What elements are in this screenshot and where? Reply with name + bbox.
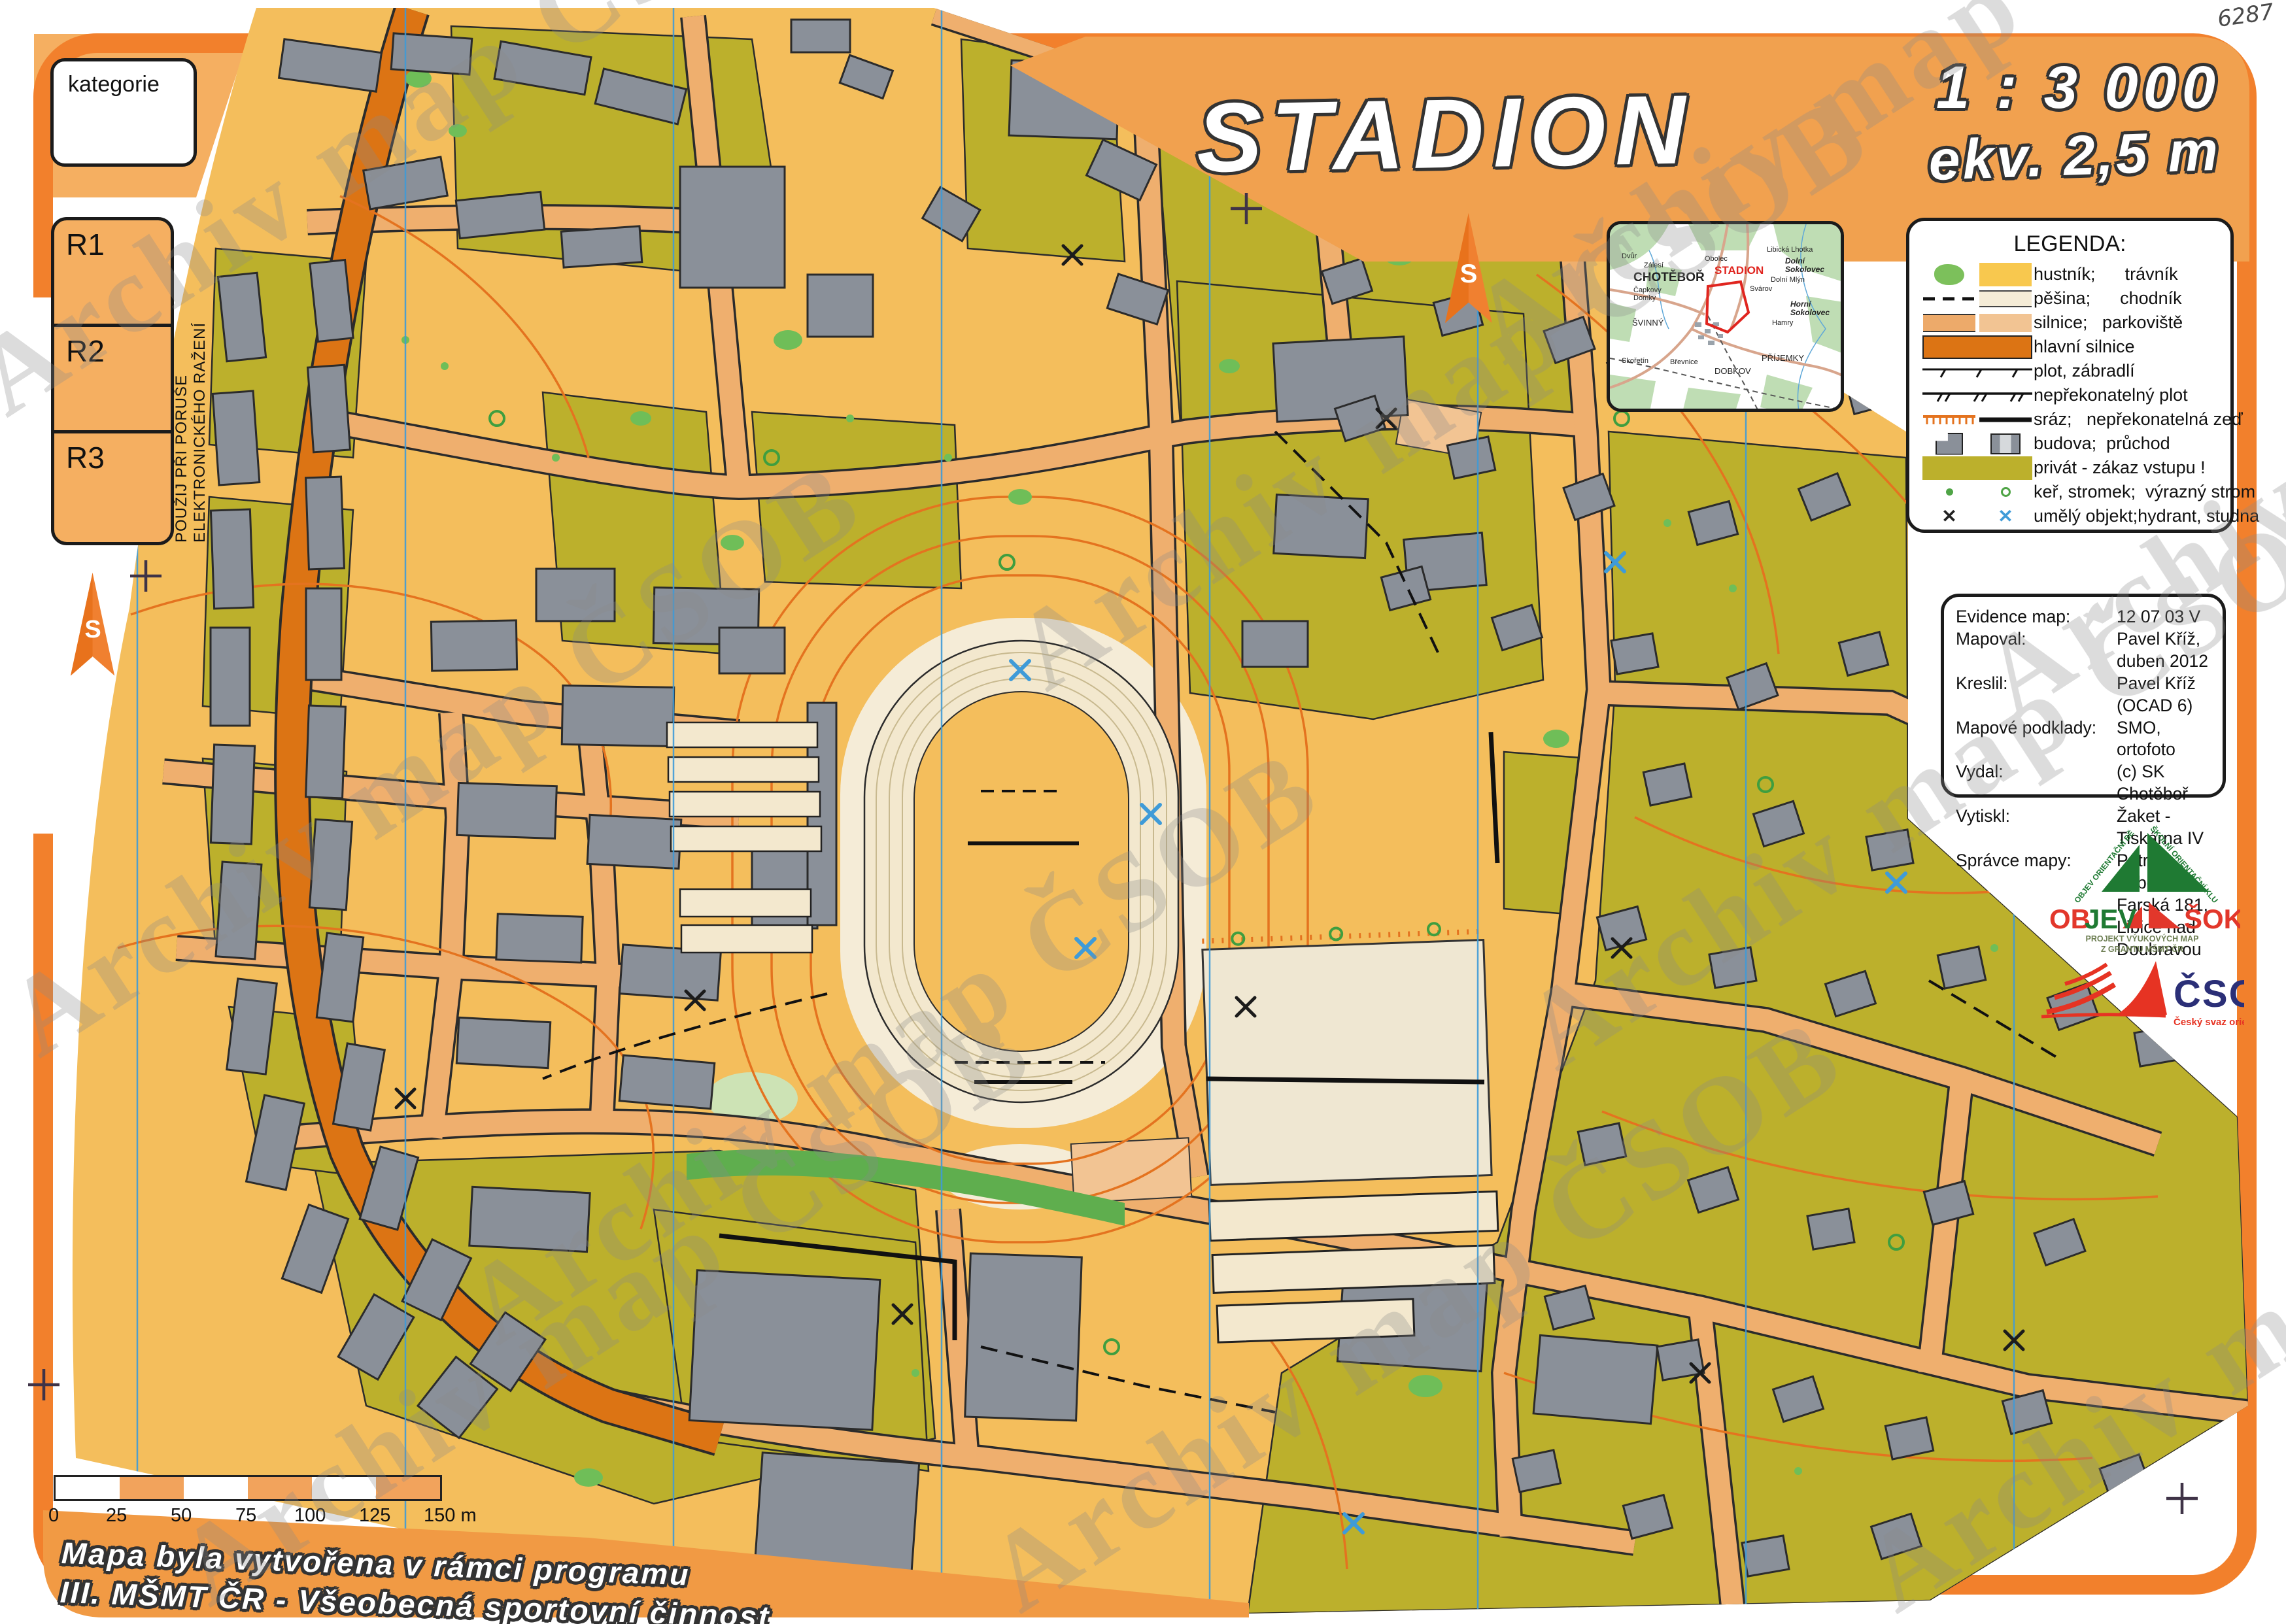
impassable-wall-icon bbox=[1979, 416, 2032, 424]
inset-place-label: Horní Sokolovec bbox=[1790, 300, 1830, 316]
private-swatch-icon bbox=[1922, 456, 2032, 480]
pavement-swatch-icon bbox=[1979, 290, 2032, 307]
csos-wordmark: ČSOS bbox=[2174, 973, 2244, 1015]
r2-label: R2 bbox=[54, 327, 171, 369]
logo-word-jev: JEV bbox=[2085, 904, 2136, 934]
scale-tick: 25 bbox=[106, 1505, 178, 1527]
building-icon bbox=[1936, 433, 1963, 455]
map-equidistance: ekv. 2,5 m bbox=[1827, 119, 2221, 197]
passage-icon bbox=[1990, 433, 2021, 454]
inset-stadion-label: STADION bbox=[1714, 265, 1764, 277]
legend-row: budova; průchod bbox=[1921, 431, 2219, 456]
logo-arc-text-left: OBJEV ORIENTAČNÍ BĚH bbox=[2044, 825, 2136, 905]
inset-place-label: Dolní Mlýn bbox=[1771, 277, 1805, 284]
category-label: kategorie bbox=[54, 61, 194, 97]
scale-tick: 150 m bbox=[424, 1505, 496, 1527]
inset-place-label: Libická Lhotka bbox=[1767, 246, 1813, 254]
objev-sok-logo: OBJEV ORIENTAČNÍ BĚH ŠKOLNÍ ORIENTAČNÍ K… bbox=[2044, 825, 2240, 959]
north-arrow-label: S bbox=[84, 616, 101, 643]
svg-text:OBJEV ORIENTAČNÍ BĚH: OBJEV ORIENTAČNÍ BĚH bbox=[2044, 825, 2136, 905]
inset-place-label: PŘÍJEMKY bbox=[1762, 354, 1804, 363]
evidence-box: Evidence map:12 07 03 V Mapoval:Pavel Kř… bbox=[1941, 594, 2226, 798]
control-description-boxes: R1 R2 R3 bbox=[51, 217, 174, 545]
punch-backup-note: POUŽIJ PŘI PORUŠE ELEKTRONICKÉHO RAŽENÍ bbox=[173, 216, 209, 543]
inset-overview-map: Dvůr Zálesí Obolec Libická Lhotka Dolní … bbox=[1607, 221, 1844, 412]
north-arrow-icon: S bbox=[71, 573, 114, 676]
logo-word-sok: ŠOK bbox=[2184, 903, 2240, 934]
inset-place-label: Hamry bbox=[1772, 320, 1793, 328]
north-arrow-label: S bbox=[1460, 260, 1478, 288]
legend-row: silnice; parkoviště bbox=[1921, 311, 2219, 335]
legend-box: LEGENDA: hustník; trávník pěšina; chodní… bbox=[1906, 218, 2234, 533]
register-cross bbox=[28, 1369, 60, 1400]
inset-place-label: Skořetín bbox=[1622, 358, 1648, 365]
parking-swatch-icon bbox=[1979, 314, 2032, 332]
lawn-swatch-icon bbox=[1979, 263, 2032, 286]
logo-subtitle-1: PROJEKT VÝUKOVÝCH MAP bbox=[2086, 934, 2199, 943]
legend-row: hlavní silnice bbox=[1921, 335, 2219, 359]
inset-place-label: Dvůr bbox=[1622, 253, 1637, 261]
bush-dot-icon bbox=[1946, 488, 1953, 496]
legend-row: keř, stromek; výrazný strom bbox=[1921, 480, 2219, 504]
legend-row: nepřekonatelný plot bbox=[1921, 383, 2219, 407]
inset-place-label: Svárov bbox=[1750, 286, 1772, 294]
fence-line-icon bbox=[1922, 364, 2032, 379]
earth-bank-icon bbox=[1923, 413, 1975, 427]
inset-place-label: DOBKOV bbox=[1714, 367, 1751, 376]
scale-tick: 50 bbox=[171, 1505, 243, 1527]
legend-row: sráz; nepřekonatelná zeď bbox=[1921, 407, 2219, 431]
r1-label: R1 bbox=[54, 220, 171, 262]
inset-place-label: Obolec bbox=[1705, 256, 1728, 263]
logo-red-triangle bbox=[2149, 902, 2180, 928]
csos-swoosh-icon bbox=[2041, 961, 2167, 1017]
inset-city-label: CHOTĚBOŘ bbox=[1633, 271, 1705, 284]
impassable-fence-icon bbox=[1922, 388, 2032, 403]
csos-logo: ČSOS Český svaz orientačních sportů bbox=[2035, 949, 2244, 1031]
register-cross bbox=[2166, 1483, 2198, 1514]
courts bbox=[1202, 922, 1492, 1185]
scale-bar bbox=[54, 1475, 442, 1501]
legend-row: plot, zábradlí bbox=[1921, 359, 2219, 383]
map-title: STADION bbox=[1196, 73, 1696, 194]
stadium-track bbox=[864, 641, 1178, 1102]
main-road-swatch-icon bbox=[1922, 335, 2032, 359]
csos-subtitle: Český svaz orientačních sportů bbox=[2174, 1016, 2244, 1028]
category-box: kategorie bbox=[50, 58, 197, 167]
blue-cross-icon: ✕ bbox=[1998, 505, 2013, 527]
footpath-dash-icon bbox=[1923, 296, 1975, 302]
legend-row: pěšina; chodník bbox=[1921, 286, 2219, 311]
inset-place-label: Dolní Sokolovec bbox=[1785, 257, 1824, 273]
tree-ring-icon bbox=[2001, 487, 2011, 497]
inset-place-label: Čapkovy Domky bbox=[1633, 287, 1662, 302]
inset-place-label: Zálesí bbox=[1644, 262, 1663, 270]
road-swatch-icon bbox=[1923, 314, 1975, 332]
legend-row: ✕ ✕ umělý objekt;hydrant, studna bbox=[1921, 504, 2219, 528]
thicket-blob-icon bbox=[1934, 264, 1964, 285]
inset-place-label: Břevnice bbox=[1670, 359, 1698, 367]
scale-tick: 100 bbox=[294, 1505, 366, 1527]
black-cross-icon: ✕ bbox=[1941, 505, 1956, 527]
map-scale: 1 : 3 000 bbox=[1828, 54, 2221, 122]
legend-row: privát - zákaz vstupu ! bbox=[1921, 456, 2219, 480]
inset-place-label: ŠVINNÝ bbox=[1632, 318, 1663, 328]
scale-tick: 125 bbox=[359, 1505, 431, 1527]
legend-title: LEGENDA: bbox=[1921, 231, 2219, 257]
map-sheet: S S STADION 1 : 3 000 ekv. 2,5 m 6287 ka… bbox=[0, 0, 2286, 1624]
r3-label: R3 bbox=[54, 433, 171, 475]
legend-row: hustník; trávník bbox=[1921, 262, 2219, 286]
